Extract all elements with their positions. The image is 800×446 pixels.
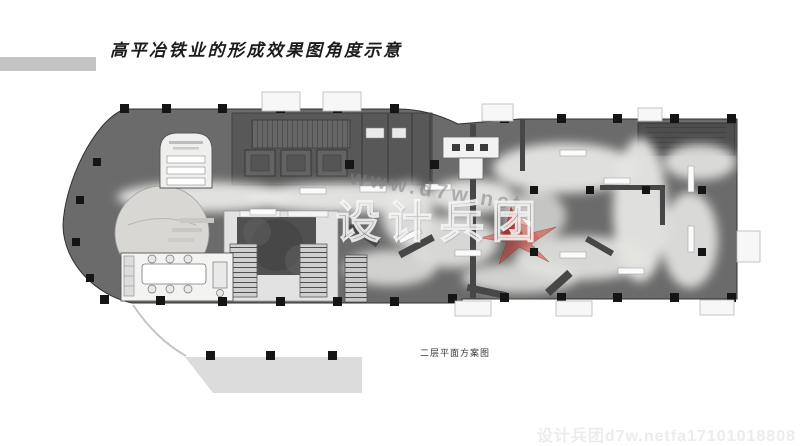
conference-room [121, 253, 233, 301]
floor-plan: www.d7w.net 设计兵团 [0, 0, 800, 445]
central-courtyard [224, 211, 338, 301]
watermark-bottom: 设计兵团d7w.netfa17101018808 [537, 422, 796, 446]
plan-caption: 二层平面方案图 [400, 346, 510, 359]
bottom-stair [345, 255, 367, 302]
watermark-brand: 设计兵团 [336, 186, 544, 250]
terrace [133, 305, 362, 393]
arched-room [160, 133, 212, 188]
